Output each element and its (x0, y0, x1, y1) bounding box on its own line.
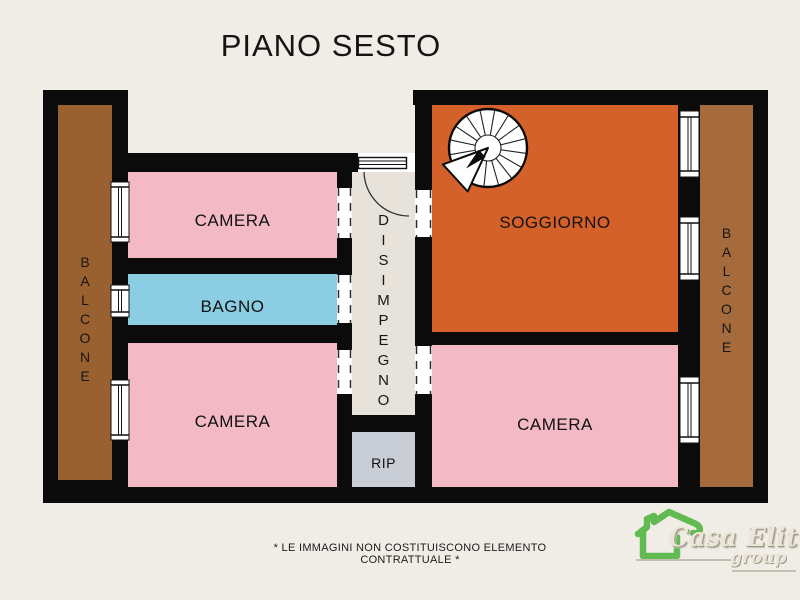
room-label-camera-bottom-right: CAMERA (432, 415, 678, 435)
window-icon (111, 182, 129, 242)
wall-segment (415, 332, 700, 345)
door-opening (415, 346, 432, 394)
logo-underline (732, 570, 796, 572)
window-icon (680, 217, 699, 280)
door-leaf (359, 158, 407, 169)
door-opening (415, 190, 432, 237)
door-opening (337, 275, 352, 323)
door-opening (337, 188, 352, 238)
window-icon (680, 111, 699, 177)
disclaimer-text: * LE IMMAGINI NON COSTITUISCONO ELEMENTO… (228, 542, 592, 566)
page-title: PIANO SESTO (181, 28, 481, 64)
window-icon (111, 285, 129, 317)
wall-segment (415, 90, 432, 503)
room-label-rip: RIP (352, 455, 415, 471)
wall-segment (413, 90, 768, 105)
room-label-balcone-left: B A L C O N E (58, 253, 112, 386)
casa-elite-logo: Casa Elite group (628, 501, 800, 585)
door-opening (337, 350, 352, 394)
wall-segment (112, 258, 352, 274)
wall-segment (112, 153, 358, 172)
room-label-balcone-right: B A L C O N E (700, 224, 753, 357)
wall-segment (58, 480, 112, 490)
logo-sub-text: group (730, 548, 786, 568)
wall-segment (43, 90, 58, 503)
wall-segment (753, 90, 768, 503)
window-icon (111, 380, 129, 440)
room-label-disimpegno: D I S I M P E G N O (352, 211, 415, 411)
window-icon (680, 377, 699, 443)
wall-segment (112, 325, 352, 343)
wall-segment (337, 415, 432, 432)
room-label-bagno: BAGNO (128, 297, 337, 317)
floor-plan-page: PIANO SESTO CAMERA BAGNO CAMERA SOGGIORN… (0, 0, 800, 600)
room-label-camera-bottom-left: CAMERA (128, 412, 337, 432)
room-label-soggiorno: SOGGIORNO (432, 213, 678, 233)
room-label-camera-top-left: CAMERA (128, 211, 337, 231)
logo-underline (636, 559, 734, 561)
